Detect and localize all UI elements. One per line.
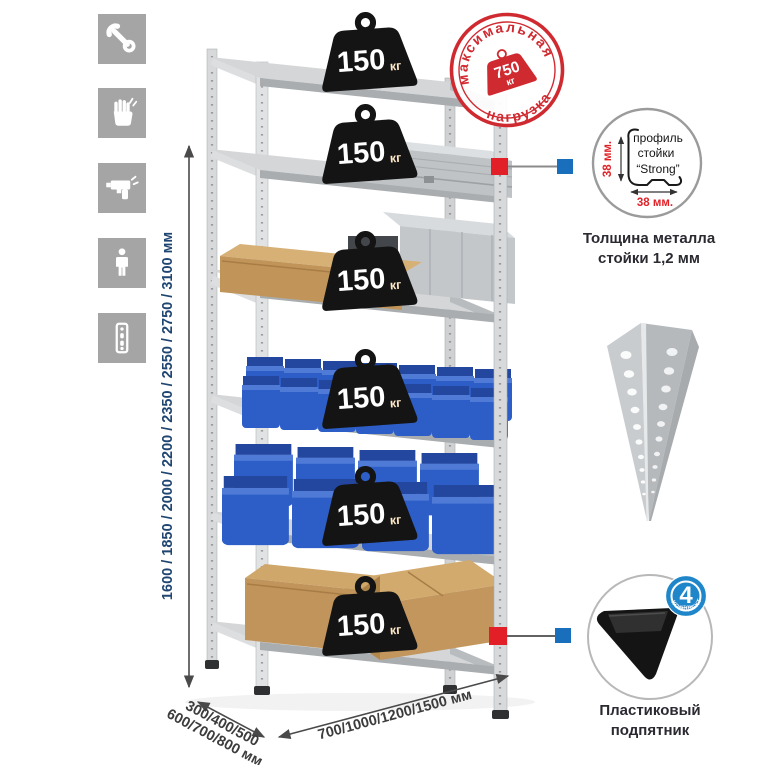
svg-text:1600 / 1850 / 2000 / 2200 / 23: 1600 / 1850 / 2000 / 2200 / 2350 / 2550 … bbox=[160, 232, 176, 600]
connector-red-marker bbox=[489, 627, 507, 645]
set-count-badge: 4 штуки В КОМПЛЕКТЕ bbox=[666, 576, 707, 617]
corner-post-illustration bbox=[607, 323, 699, 521]
max-load-stamp: 750 кг максимальная нагрузка bbox=[437, 0, 577, 140]
product-infographic: 150 кг 150 кг 150 кг 150 кг 150 кг bbox=[0, 0, 765, 765]
callout-connector-top bbox=[491, 158, 573, 175]
shelf-load-weight: 150 кг bbox=[317, 12, 417, 93]
rack-front-right-post bbox=[494, 95, 507, 714]
svg-text:150: 150 bbox=[336, 608, 387, 643]
svg-text:150: 150 bbox=[336, 44, 387, 79]
plastic-foot-detail: 4 штуки В КОМПЛЕКТЕ bbox=[588, 575, 712, 699]
shelf-load-weight: 150 кг bbox=[317, 349, 417, 430]
svg-text:кг: кг bbox=[389, 59, 401, 74]
svg-text:150: 150 bbox=[336, 136, 387, 171]
shelving-rack-scene: 150 кг 150 кг 150 кг 150 кг 150 кг bbox=[0, 0, 765, 765]
shelf-load-weights: 150 кг 150 кг 150 кг 150 кг 150 кг bbox=[317, 12, 417, 657]
svg-text:150: 150 bbox=[336, 263, 387, 298]
svg-text:профиль: профиль bbox=[633, 131, 683, 145]
post-profile-detail: 38 мм. 38 мм. профиль стойки “Strong” bbox=[593, 109, 701, 217]
svg-text:38 мм.: 38 мм. bbox=[637, 197, 673, 209]
connector-blue-marker bbox=[557, 159, 573, 174]
height-dimension: 1600 / 1850 / 2000 / 2200 / 2350 / 2550 … bbox=[160, 146, 189, 687]
rack-side-beams bbox=[212, 61, 261, 645]
svg-text:кг: кг bbox=[389, 623, 401, 638]
svg-text:кг: кг bbox=[389, 513, 401, 528]
connector-red-marker bbox=[491, 158, 508, 175]
svg-text:кг: кг bbox=[389, 151, 401, 166]
svg-text:стойки: стойки bbox=[638, 146, 675, 160]
shelf-load-weight: 150 кг bbox=[317, 104, 417, 185]
svg-text:кг: кг bbox=[389, 396, 401, 411]
svg-text:150: 150 bbox=[336, 381, 387, 416]
callout-connector-bottom bbox=[489, 627, 571, 645]
connector-blue-marker bbox=[555, 628, 571, 643]
foot-caption: Пластиковый подпятник bbox=[572, 701, 728, 741]
svg-text:150: 150 bbox=[336, 498, 387, 533]
svg-text:кг: кг bbox=[389, 278, 401, 293]
svg-text:“Strong”: “Strong” bbox=[636, 162, 679, 176]
svg-text:38 мм.: 38 мм. bbox=[602, 141, 614, 177]
profile-caption: Толщина металла стойки 1,2 мм bbox=[570, 229, 728, 269]
